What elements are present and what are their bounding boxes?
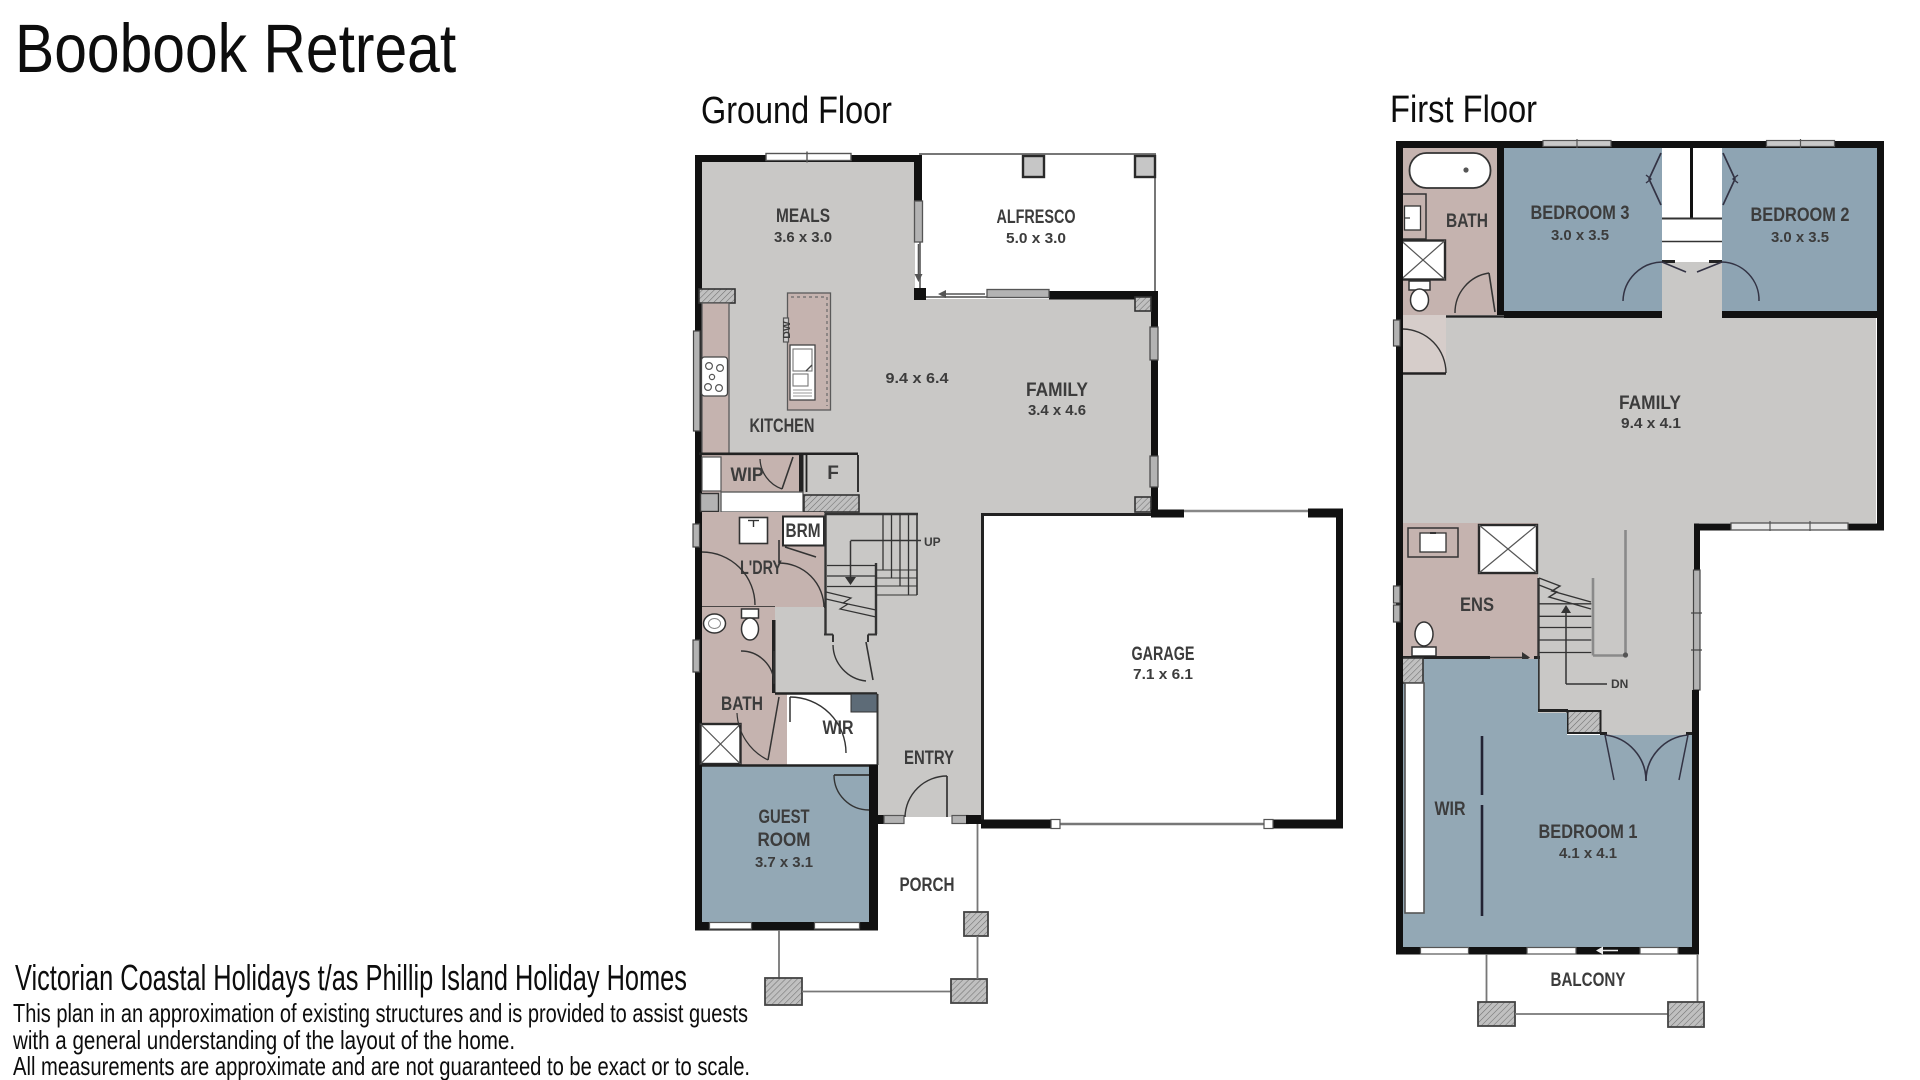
svg-text:BEDROOM 1: BEDROOM 1 [1539,822,1638,843]
svg-text:3.0 x 3.5: 3.0 x 3.5 [1771,230,1829,246]
svg-text:3.0 x 3.5: 3.0 x 3.5 [1551,228,1609,244]
svg-text:GARAGE: GARAGE [1132,644,1195,665]
svg-text:BEDROOM 3: BEDROOM 3 [1531,203,1630,224]
svg-text:MEALS: MEALS [776,206,830,227]
svg-text:BATH: BATH [1446,211,1488,232]
svg-text:5.0 x 3.0: 5.0 x 3.0 [1006,231,1066,247]
svg-text:WIR: WIR [823,718,854,739]
svg-text:PORCH: PORCH [900,875,955,896]
svg-text:3.7 x 3.1: 3.7 x 3.1 [755,855,813,871]
svg-text:F: F [827,463,839,484]
svg-text:ALFRESCO: ALFRESCO [997,207,1076,228]
svg-text:FAMILY: FAMILY [1026,380,1088,401]
svg-text:FAMILY: FAMILY [1619,393,1681,414]
svg-text:9.4 x 4.1: 9.4 x 4.1 [1621,416,1681,432]
svg-text:DW: DW [781,321,793,339]
svg-text:GUEST: GUEST [759,807,810,828]
svg-text:4.1 x 4.1: 4.1 x 4.1 [1559,846,1617,862]
svg-text:WIR: WIR [1435,799,1466,820]
svg-text:9.4 x 6.4: 9.4 x 6.4 [886,371,949,387]
svg-text:BRM: BRM [786,521,821,542]
svg-text:UP: UP [924,535,941,549]
svg-text:3.6 x 3.0: 3.6 x 3.0 [774,230,832,246]
svg-text:KITCHEN: KITCHEN [750,416,815,437]
svg-text:7.1 x 6.1: 7.1 x 6.1 [1133,667,1193,683]
svg-text:ENTRY: ENTRY [904,748,954,769]
svg-text:3.4 x 4.6: 3.4 x 4.6 [1028,403,1086,419]
svg-text:BEDROOM 2: BEDROOM 2 [1751,205,1850,226]
svg-text:ROOM: ROOM [758,830,811,851]
svg-text:DN: DN [1611,677,1628,691]
svg-text:WIP: WIP [731,465,764,486]
svg-text:BALCONY: BALCONY [1551,970,1626,991]
svg-text:ENS: ENS [1460,595,1494,616]
svg-text:BATH: BATH [721,694,763,715]
